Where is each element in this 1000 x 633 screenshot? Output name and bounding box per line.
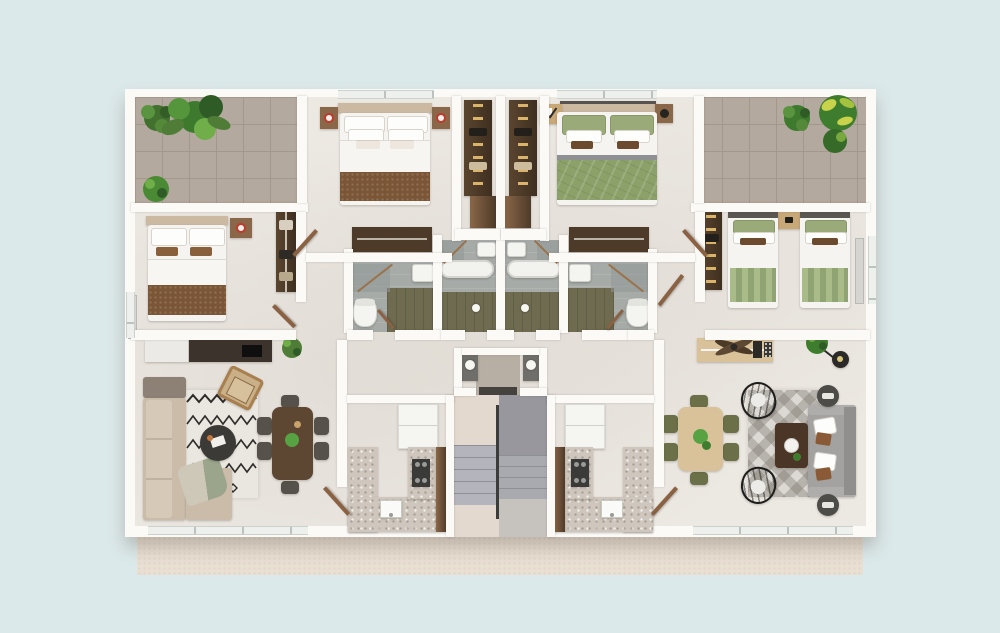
building-plinth [137, 531, 863, 575]
stove-burner [581, 478, 586, 483]
wall-stair-left [446, 395, 454, 537]
wall-zone-left-b [347, 330, 373, 340]
closet-left-bench [470, 196, 496, 228]
wall-closet-left-bottom [455, 229, 500, 240]
utility-basin-left [465, 360, 475, 370]
bath-inner-left-floor [438, 292, 497, 332]
stove-burner [415, 462, 420, 467]
dining-chair [257, 417, 272, 435]
kitchen-left-sink [380, 500, 402, 518]
wall-zone-left-c [395, 330, 441, 340]
tv-screen [242, 345, 262, 357]
stair-tread [454, 481, 496, 482]
wall-kitchen-right-top [547, 395, 654, 403]
croton-plant-right [815, 91, 861, 155]
bed-cushion [190, 247, 212, 256]
croton-plant-right-graphic [815, 91, 861, 155]
cabinet-divider [566, 425, 604, 426]
coffee-table-plant [793, 453, 801, 461]
sink-inner-left [477, 242, 496, 257]
wall-zone-right-b [628, 330, 654, 340]
window-master-left [338, 90, 434, 99]
stairs-down-treads [499, 455, 547, 499]
closet-clothes [514, 128, 532, 136]
master-left-nightstand [320, 107, 338, 129]
master-left-headboard [338, 103, 432, 113]
stove-burner [422, 462, 427, 467]
wall-bath-divider-right [559, 235, 568, 333]
kitchen-right-stove [571, 459, 589, 487]
bed-cushion [617, 141, 639, 149]
sofa-cushions [146, 400, 172, 518]
twin-blanket [802, 268, 848, 302]
twin-bed-1 [728, 212, 778, 308]
closet-right-rack [509, 100, 537, 196]
wall-zone-center-r [536, 330, 560, 340]
dining-table-right [678, 407, 723, 471]
small-bedroom-bed [148, 225, 226, 321]
wardrobe-clothes [279, 272, 293, 281]
coffee-table-right [775, 423, 808, 468]
window-small-bedroom [126, 292, 135, 338]
kitchen-right-pantry-strip [554, 447, 565, 532]
master-right-headboard [560, 101, 656, 112]
faucet [610, 513, 614, 517]
monstera-plant-graphic [153, 89, 237, 149]
faucet [389, 513, 393, 517]
wall-terrace-right-side [694, 96, 704, 203]
wall-terrace-right-bottom [691, 203, 870, 212]
stairs-down-landing [499, 499, 547, 537]
stove-burner [574, 462, 579, 467]
wall-closet-left [452, 96, 461, 241]
toilet-outer-left [353, 298, 377, 327]
closet-clothes [514, 162, 532, 170]
stair-tread [454, 457, 496, 458]
gray-sofa [808, 405, 856, 497]
stove-burner [422, 478, 427, 483]
stairs-down-flight [499, 395, 547, 455]
master-left-bed [340, 113, 430, 205]
table-dish [294, 421, 301, 428]
dining-chair [314, 417, 329, 435]
olive-dining-chair [723, 443, 739, 461]
stairs-up-treads [454, 445, 496, 505]
table-plant-small [702, 441, 711, 450]
closet-hangers [473, 104, 483, 192]
kitchen-left-stove [412, 459, 430, 487]
bathtub-inner-right [507, 260, 561, 278]
closet-left-rack [464, 100, 492, 196]
wall-kitchen-left-top [347, 395, 454, 403]
wall-master-left-bottom [306, 253, 452, 262]
sink-outer-left [412, 264, 434, 282]
window-living-left [148, 526, 308, 535]
sofa-back [844, 407, 856, 495]
dining-chair [281, 481, 299, 494]
sofa-left-corner-section [143, 377, 186, 398]
toilet-outer-right [626, 298, 650, 327]
round-bush-left-graphic [140, 174, 172, 204]
bed-duvet-fold [148, 259, 226, 286]
bed-cushion [571, 141, 593, 149]
round-coffee-table [200, 425, 236, 461]
bed-green-duvet [557, 160, 657, 200]
wall-zone-right-a [705, 330, 870, 340]
bed-pillow [189, 228, 225, 246]
kitchen-right-sink [601, 500, 623, 518]
twin-blanket [730, 268, 776, 302]
monstera-plant [153, 89, 237, 149]
wall-zone-left-d [441, 330, 465, 340]
wall-terrace-left-side [297, 96, 307, 203]
sofa-left-main [143, 398, 186, 520]
wall-zone-left-a [131, 330, 296, 340]
bed-cushion [156, 247, 178, 256]
wall-closet-right-bottom [501, 229, 546, 240]
pouf-2 [817, 494, 839, 516]
stair-tread [499, 477, 547, 478]
nightstand-lamp [436, 113, 446, 123]
twin-shared-nightstand [777, 212, 800, 229]
coffee-table-cup [207, 435, 213, 441]
wall-master-right-bottom [549, 253, 695, 262]
door-knob-inner-right [521, 304, 529, 312]
bush-plant-right [778, 101, 816, 135]
small-bedroom-wardrobe [276, 210, 296, 292]
sofa-pillow-brown [815, 467, 832, 481]
wall-bath-divider-left [433, 235, 442, 333]
wardrobe-clothes [279, 250, 293, 259]
wall-vestibule-right-stub [520, 388, 547, 396]
wall-corridor-left [296, 212, 306, 302]
wall-zone-center-l [487, 330, 514, 340]
bed-blanket [148, 285, 226, 315]
wall-corridor-right [695, 212, 705, 302]
shower-outer-right [611, 264, 649, 292]
closet-hangers [706, 215, 716, 287]
olive-dining-chair [662, 443, 678, 461]
tv-console-shelves [145, 340, 189, 362]
bath-outer-left-floor [387, 288, 433, 332]
stove-burner [581, 462, 586, 467]
wardrobe-clothes [279, 220, 293, 230]
armchair-seat-line [226, 376, 256, 404]
dining-chair [314, 442, 329, 460]
utility-basin-right [526, 360, 536, 370]
stair-center-rail [496, 405, 499, 519]
olive-dining-chair [662, 415, 678, 433]
dining-table-left [272, 407, 313, 480]
bed-duvet-fold [340, 140, 430, 173]
master-left-dresser [352, 227, 432, 252]
closet-hangers [518, 104, 528, 192]
stair-tread [454, 493, 496, 494]
nightstand-lamp [236, 223, 246, 233]
olive-dining-chair [723, 415, 739, 433]
round-bush-left [140, 174, 172, 204]
closet-right-bench [505, 196, 531, 228]
window-living-right [693, 526, 853, 535]
closet-clothes [469, 162, 487, 170]
nightstand-lamp [324, 113, 334, 123]
wall-zone-right-c [582, 330, 628, 340]
wall-center-spine [496, 96, 505, 333]
wall-living-hall-left [337, 340, 347, 487]
stair-tread [499, 488, 547, 489]
small-bedroom-nightstand [230, 218, 252, 238]
stair-tread [454, 445, 496, 446]
bush-plant-right-graphic [778, 101, 816, 135]
stair-tread [499, 466, 547, 467]
stair-tread [454, 469, 496, 470]
dining-chair [257, 442, 272, 460]
sofa-pillow-brown [815, 432, 832, 446]
bathtub-inner-left [440, 260, 494, 278]
wall-terrace-left-bottom [131, 203, 308, 212]
door-knob-inner-left [472, 304, 480, 312]
tv-console-left [145, 340, 272, 362]
radiator-twin-bedroom [855, 238, 864, 304]
nightstand-lamp-black [660, 109, 669, 118]
bed-pillow [151, 228, 187, 246]
floor-plan-scene [0, 0, 1000, 633]
coffee-table-tray [784, 438, 799, 453]
table-plant [285, 433, 299, 447]
olive-dining-chair [690, 472, 708, 485]
master-left-nightstand-2 [432, 107, 450, 129]
master-right-bed [557, 112, 657, 205]
wall-stair-right [547, 395, 555, 537]
master-right-nightstand [655, 104, 673, 123]
sideboard-box [764, 342, 772, 357]
pouf-towel [822, 502, 834, 508]
window-twin-bedroom [868, 236, 877, 304]
toilet-tank [628, 299, 648, 306]
wall-living-hall-right [654, 340, 664, 487]
master-right-dresser [569, 227, 649, 252]
building [125, 89, 876, 537]
wire-chair-cushion [749, 391, 767, 408]
arc-floor-lamp-head [832, 351, 849, 368]
kitchen-left-fridge-cabinet [398, 404, 438, 449]
wall-nook-top [462, 348, 539, 355]
bed-cushion [812, 238, 838, 245]
entry-doormat [479, 387, 517, 395]
twin-headboard [728, 212, 778, 218]
lamp-glow [837, 356, 843, 362]
sink-inner-right [507, 242, 526, 257]
sink-outer-right [569, 264, 591, 282]
bed-cushion [740, 238, 766, 245]
closet-clothes [703, 234, 719, 242]
pouf-1 [817, 385, 839, 407]
twin-headboard [800, 212, 850, 218]
closet-clothes [469, 128, 487, 136]
wall-closet-right [540, 96, 549, 241]
stove-burner [574, 478, 579, 483]
toilet-tank [355, 299, 375, 306]
twin-bed-2 [800, 212, 850, 308]
stair-tread [499, 455, 547, 456]
pouf-towel [822, 393, 834, 399]
nightstand-phone [785, 217, 793, 223]
bath-inner-right-floor [504, 292, 563, 332]
small-bedroom-headboard [146, 216, 228, 225]
kitchen-right-fridge-cabinet [565, 404, 605, 449]
cabinet-divider [399, 425, 437, 426]
window-master-right [557, 90, 657, 99]
wall-vestibule-left-stub [454, 388, 476, 396]
wire-chair-cushion [749, 478, 767, 495]
stove-burner [415, 478, 420, 483]
bed-blanket [340, 172, 430, 201]
